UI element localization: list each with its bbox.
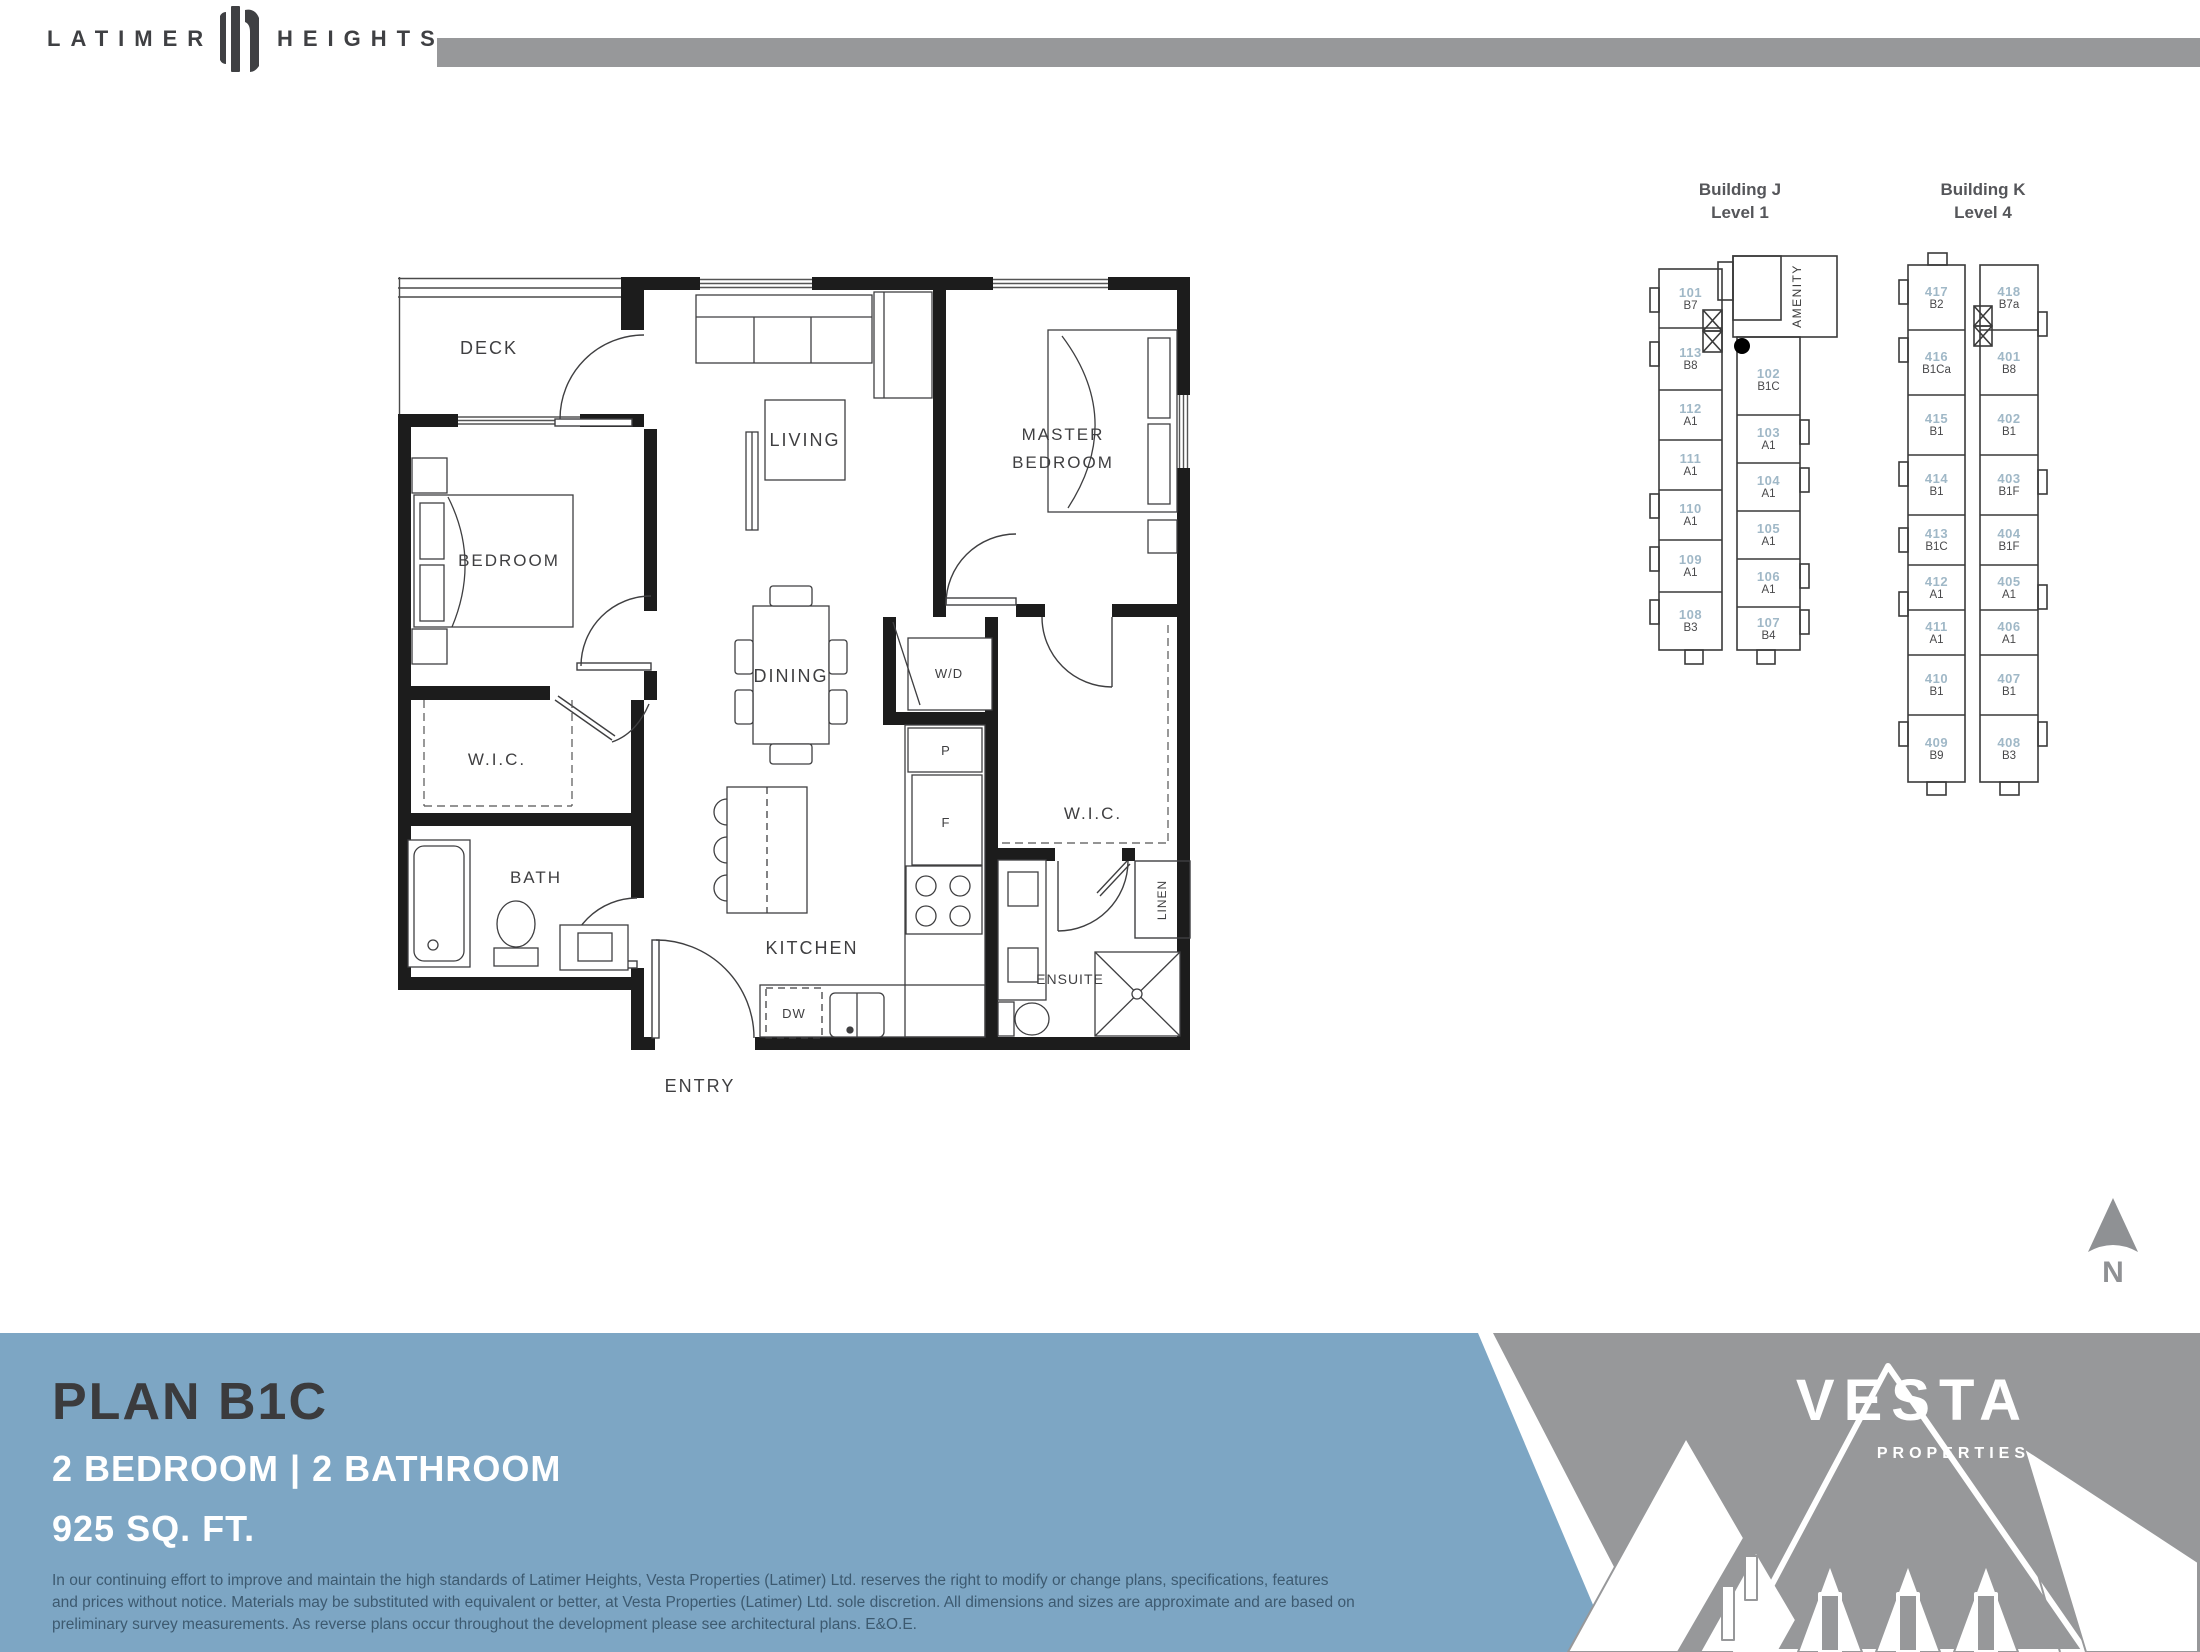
unit-cell-106: 106A1	[1737, 559, 1800, 607]
dining-label: DINING	[754, 666, 829, 686]
bath-label: BATH	[510, 868, 562, 887]
master-label-line1: MASTER	[1022, 425, 1105, 444]
disclaimer-line2: and prices without notice. Materials may…	[52, 1594, 1355, 1612]
unit-cell-102: 102B1C	[1737, 345, 1800, 415]
vesta-logo-text: VESTA	[1796, 1368, 2030, 1433]
plan-spec: 2 BEDROOM | 2 BATHROOM	[52, 1448, 561, 1490]
unit-cell-406: 406A1	[1980, 610, 2038, 655]
floorplan-sheet: LATIMER HEIGHTS	[0, 0, 2200, 1652]
plan-area: 925 SQ. FT.	[52, 1508, 255, 1550]
unit-cell-417: 417B2	[1908, 265, 1965, 330]
unit-cell-110: 110A1	[1659, 490, 1722, 540]
furniture	[408, 292, 1180, 1038]
unit-cell-108: 108B3	[1659, 592, 1722, 650]
unit-cell-401: 401B8	[1980, 330, 2038, 395]
brand-latimer: LATIMER	[47, 26, 213, 52]
unit-cell-404: 404B1F	[1980, 515, 2038, 565]
vesta-logo-subtext: PROPERTIES	[1877, 1445, 2030, 1462]
unit-cell-411: 411A1	[1908, 610, 1965, 655]
unit-cell-113: 113B8	[1659, 328, 1722, 390]
unit-cell-415: 415B1	[1908, 395, 1965, 455]
keyplan-j-title-line2: Level 1	[1655, 201, 1825, 224]
keyplan-k-title: Building K Level 4	[1898, 178, 2068, 224]
fridge-label: F	[942, 815, 951, 830]
unit-cell-410: 410B1	[1908, 655, 1965, 715]
unit-cell-109: 109A1	[1659, 540, 1722, 592]
kitchen-label: KITCHEN	[765, 938, 858, 958]
unit-cell-405: 405A1	[1980, 565, 2038, 610]
unit-cell-101: 101B7	[1659, 269, 1722, 328]
north-compass-icon: N	[2070, 1190, 2160, 1290]
unit-cell-416: 416B1Ca	[1908, 330, 1965, 395]
keyplan-j-title: Building J Level 1	[1655, 178, 1825, 224]
wic-right-label: W.I.C.	[1064, 804, 1122, 823]
unit-cell-413: 413B1C	[1908, 515, 1965, 565]
unit-cell-104: 104A1	[1737, 463, 1800, 511]
disclaimer-line1: In our continuing effort to improve and …	[52, 1572, 1329, 1590]
dishwasher-label: DW	[782, 1006, 806, 1021]
wic-left-label: W.I.C.	[468, 750, 526, 769]
bedroom-label: BEDROOM	[458, 551, 560, 570]
brand-heights: HEIGHTS	[277, 26, 445, 52]
master-label-line2: BEDROOM	[1012, 453, 1114, 472]
keyplan-k-title-line2: Level 4	[1898, 201, 2068, 224]
keyplan-j-title-line1: Building J	[1655, 178, 1825, 201]
pantry-label: P	[941, 743, 951, 758]
unit-cell-412: 412A1	[1908, 565, 1965, 610]
unit-cell-409: 409B9	[1908, 715, 1965, 782]
plan-title: PLAN B1C	[52, 1372, 328, 1432]
living-label: LIVING	[769, 430, 840, 450]
unit-cell-407: 407B1	[1980, 655, 2038, 715]
washer-dryer-label: W/D	[935, 666, 963, 681]
unit-cell-107: 107B4	[1737, 607, 1800, 650]
unit-cell-418: 418B7a	[1980, 265, 2038, 330]
keyplan-k-title-line1: Building K	[1898, 178, 2068, 201]
disclaimer-line3: preliminary survey measurements. As reve…	[52, 1616, 917, 1634]
unit-cell-105: 105A1	[1737, 511, 1800, 559]
entry-label: ENTRY	[665, 1076, 736, 1096]
header-gray-bar	[437, 38, 2200, 67]
unit-cell-103: 103A1	[1737, 415, 1800, 463]
unit-floorplan-drawing: DECK LIVING MASTER BEDROOM BEDROOM DININ…	[390, 265, 1205, 1100]
unit-cell-111: 111A1	[1659, 440, 1722, 490]
unit-cell-402: 402B1	[1980, 395, 2038, 455]
north-label: N	[2102, 1256, 2124, 1289]
unit-cell-112: 112A1	[1659, 390, 1722, 440]
unit-cell-414: 414B1	[1908, 455, 1965, 515]
amenity-label: AMENITY	[1790, 264, 1804, 328]
linen-label: LINEN	[1155, 880, 1169, 920]
unit-cell-408: 408B3	[1980, 715, 2038, 782]
deck-label: DECK	[460, 338, 518, 358]
ensuite-label: ENSUITE	[1036, 971, 1104, 987]
unit-cell-403: 403B1F	[1980, 455, 2038, 515]
latimer-heights-logo-icon	[218, 4, 268, 74]
